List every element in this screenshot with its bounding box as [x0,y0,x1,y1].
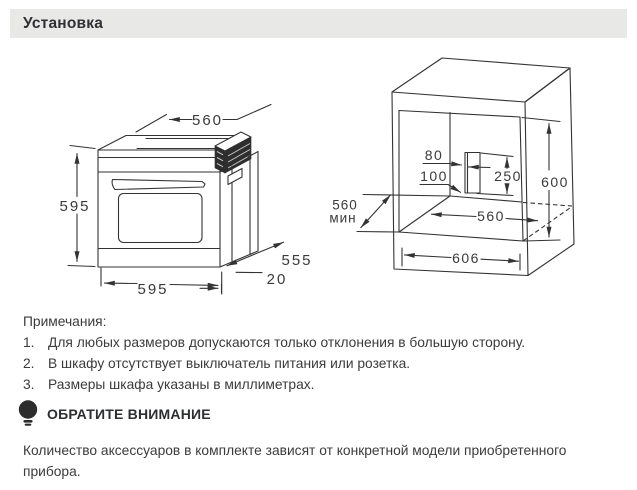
installation-diagrams: 560 595 595 555 20 [0,45,637,305]
manual-page: Установка [0,0,637,490]
cabinet-diagram: 80 100 250 600 560 606 [329,58,574,276]
oven-handle [112,180,205,190]
note-number: 2. [23,353,48,374]
attention-title: ОБРАТИТЕ ВНИМАНИЕ [47,406,211,422]
cabinet-dim-cutout-width: 80 [425,147,444,163]
note-number: 3. [23,374,48,395]
note-number: 1. [23,332,48,353]
oven-dim-front-offset: 20 [267,271,288,288]
cabinet-dim-niche-height: 600 [541,174,569,190]
notes-section: Примечания: 1. Для любых размеров допуск… [23,311,623,395]
lightbulb-icon [17,400,39,427]
door-latch [228,169,242,185]
list-item: 3. Размеры шкафа указаны в миллиметрах. [23,374,623,395]
attention-header: ОБРАТИТЕ ВНИМАНИЕ [17,400,211,427]
cabinet-dim-cutout-offset: 100 [420,168,448,184]
oven-dim-depth: 555 [281,252,312,269]
note-text: В шкафу отсутствует выключатель питания … [48,353,410,374]
door-window [119,194,203,243]
note-text: Для любых размеров допускаются только от… [48,332,525,353]
cabinet-dim-depth-min-label: мин [329,211,356,226]
section-header: Установка [10,9,627,38]
list-item: 2. В шкафу отсутствует выключатель питан… [23,353,623,374]
cabinet-dim-cutout-height: 250 [494,168,522,184]
list-item: 1. Для любых размеров допускаются только… [23,332,623,353]
page-title: Установка [23,15,103,33]
oven-dim-top-width: 560 [192,112,223,129]
oven-dim-bottom-width: 595 [137,281,168,298]
cabinet-dim-niche-width: 560 [477,208,505,224]
attention-text: Количество аксессуаров в комплекте завис… [23,440,598,482]
notes-title: Примечания: [23,311,623,332]
cabinet-dim-outer-width: 606 [452,250,480,266]
note-text: Размеры шкафа указаны в миллиметрах. [48,374,315,395]
oven-dim-height: 595 [59,198,90,215]
oven-diagram: 560 595 595 555 20 [59,105,312,299]
